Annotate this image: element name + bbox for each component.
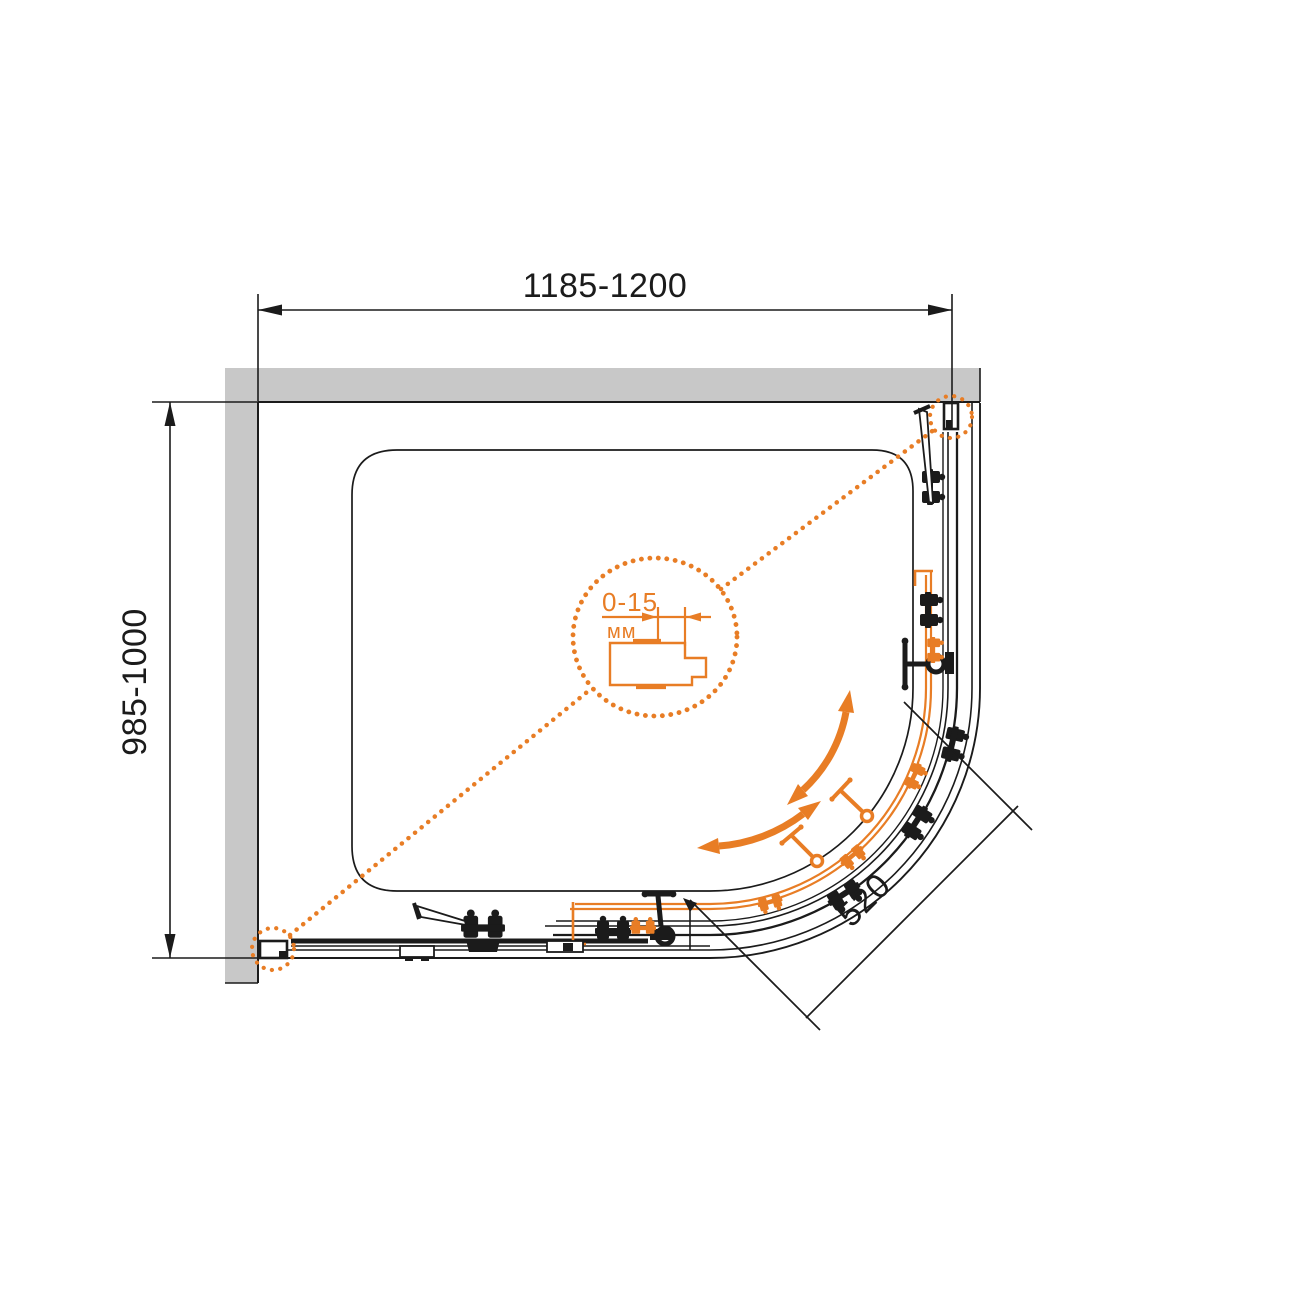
shower-enclosure-plan-drawing: 1185-1200 985-1000 520 0-15 мм bbox=[0, 0, 1300, 1300]
fixed-glass-inner bbox=[556, 432, 943, 921]
door-knob-orange-2 bbox=[779, 824, 822, 866]
top-wall bbox=[225, 368, 980, 402]
door-edge-sliver-top bbox=[914, 406, 933, 503]
door-hardware-black bbox=[400, 406, 971, 961]
detail-arrow-icon bbox=[686, 613, 701, 622]
technical-drawing-page: 1185-1200 985-1000 520 0-15 мм bbox=[0, 0, 1300, 1300]
dimension-depth-label: 985-1000 bbox=[116, 608, 154, 756]
adjustment-range-label: 0-15 bbox=[602, 587, 658, 617]
detail-leader-line bbox=[290, 688, 592, 935]
door-edge-sliver-bottom bbox=[414, 903, 466, 925]
fixed-glass-outer bbox=[545, 432, 948, 926]
detail-content: 0-15 мм bbox=[602, 587, 711, 687]
rail-bracket bbox=[547, 941, 583, 952]
dimension-width: 1185-1200 bbox=[258, 267, 952, 430]
adjustment-profile-section bbox=[610, 643, 706, 685]
dimension-arrow-icon bbox=[165, 934, 176, 958]
detail-magnifier-circle-icon bbox=[573, 558, 737, 716]
track-rail bbox=[553, 432, 957, 935]
roller-base-plate bbox=[466, 940, 500, 952]
shower-tray-outline bbox=[352, 450, 913, 891]
wall-profile-top-right bbox=[944, 403, 958, 429]
roller-carriage bbox=[461, 909, 505, 937]
slide-direction-arrows bbox=[697, 690, 854, 854]
dimension-arrow-icon bbox=[258, 305, 282, 316]
door-roller bbox=[927, 637, 944, 663]
dimension-width-label: 1185-1200 bbox=[523, 267, 688, 305]
dimension-arrow-icon bbox=[165, 402, 176, 426]
door-knob-orange-1 bbox=[829, 777, 872, 821]
adjustment-unit-label: мм bbox=[607, 621, 637, 643]
dimension-arrow-icon bbox=[928, 305, 952, 316]
wall-profile-bottom-left bbox=[260, 941, 287, 958]
left-wall bbox=[225, 368, 258, 983]
detail-leader-line bbox=[721, 429, 935, 589]
